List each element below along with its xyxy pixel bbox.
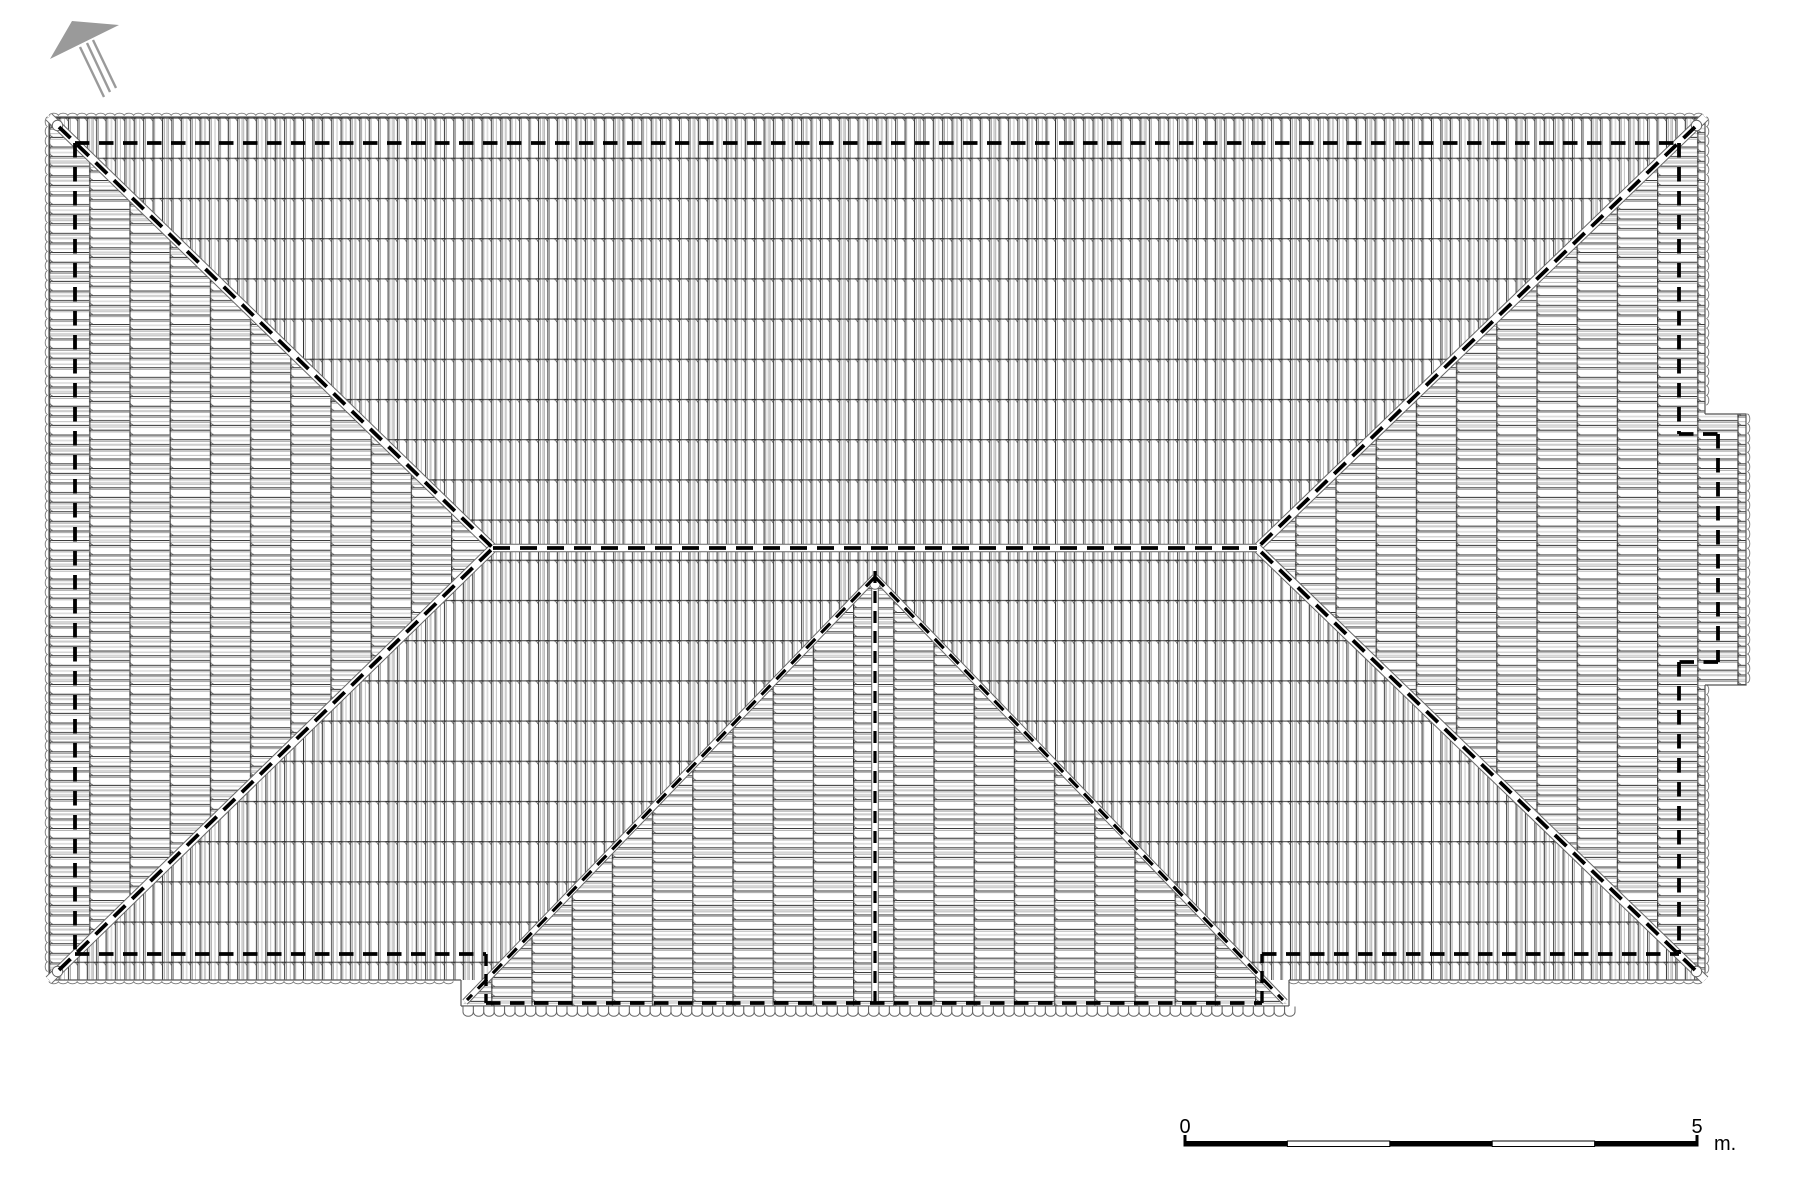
svg-text:m.: m.	[1714, 1133, 1736, 1155]
svg-text:5: 5	[1691, 1116, 1702, 1138]
svg-text:0: 0	[1179, 1116, 1190, 1138]
